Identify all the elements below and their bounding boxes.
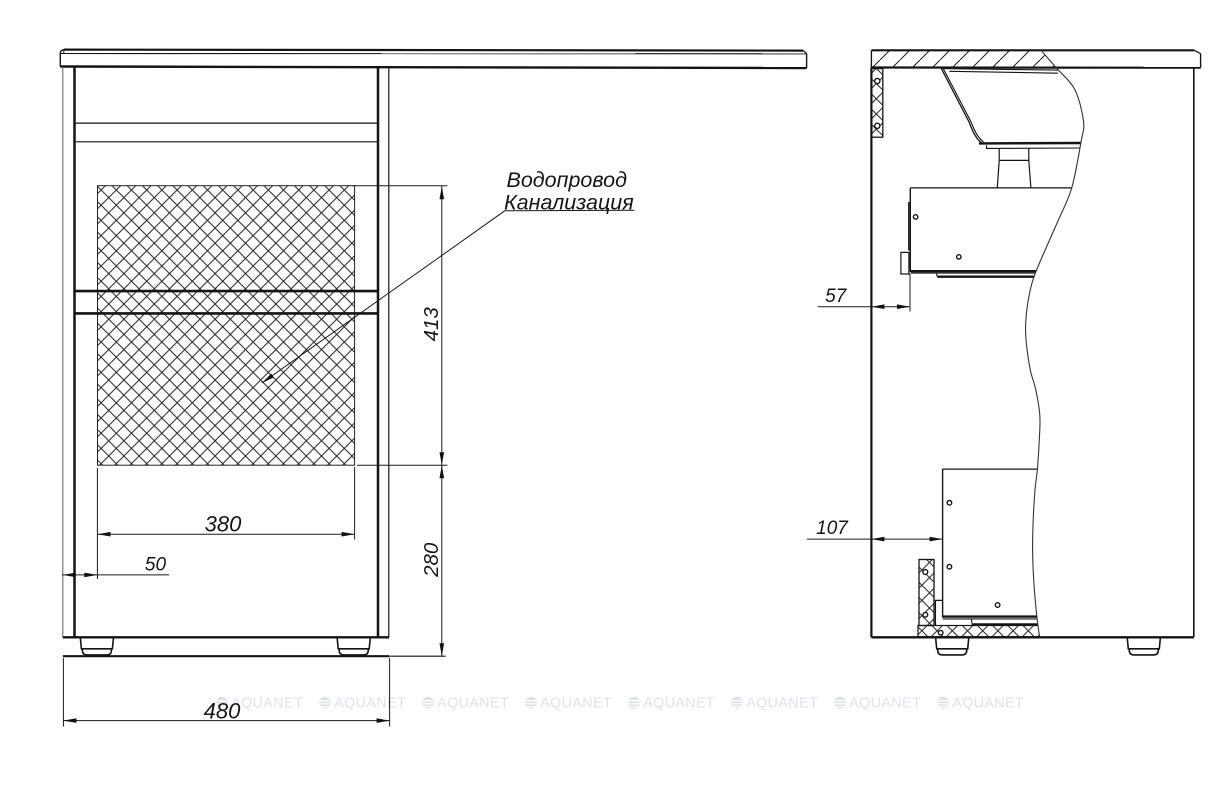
svg-text:57: 57 xyxy=(825,286,848,307)
svg-text:AQUANET: AQUANET xyxy=(952,695,1024,711)
svg-text:AQUANET: AQUANET xyxy=(540,695,612,711)
svg-text:280: 280 xyxy=(420,542,443,578)
svg-text:AQUANET: AQUANET xyxy=(437,695,509,711)
svg-text:380: 380 xyxy=(205,512,242,537)
svg-text:AQUANET: AQUANET xyxy=(849,695,921,711)
svg-text:AQUANET: AQUANET xyxy=(231,695,303,711)
svg-text:413: 413 xyxy=(420,307,443,342)
svg-text:107: 107 xyxy=(816,518,849,539)
svg-text:480: 480 xyxy=(204,699,241,724)
svg-text:Водопровод: Водопровод xyxy=(507,168,628,192)
svg-text:AQUANET: AQUANET xyxy=(643,695,715,711)
svg-text:Канализация: Канализация xyxy=(504,190,634,214)
svg-text:AQUANET: AQUANET xyxy=(334,695,406,711)
svg-text:AQUANET: AQUANET xyxy=(746,695,818,711)
svg-text:50: 50 xyxy=(145,555,167,576)
